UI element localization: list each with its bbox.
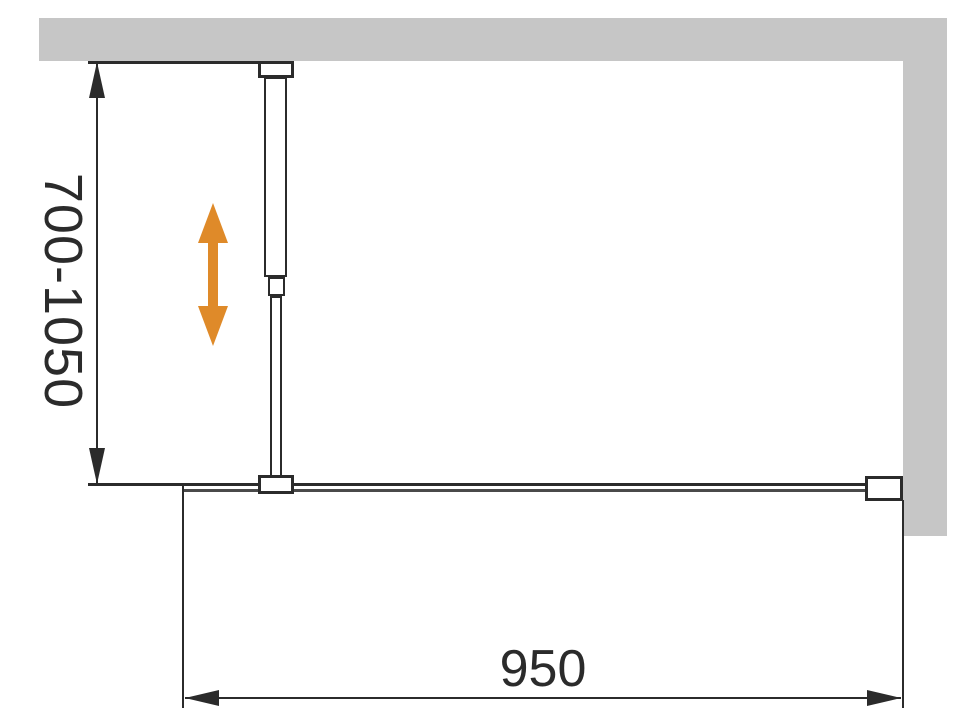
extension-line-right — [902, 500, 904, 708]
support-bar-wall-bracket — [258, 61, 294, 78]
wall-face-reference-line — [88, 61, 260, 64]
arrow-head-down — [198, 306, 228, 346]
wall-top — [39, 18, 947, 61]
support-bar-glass-clamp — [258, 475, 294, 494]
support-bar-lower-tube — [270, 296, 282, 477]
wall-right — [903, 18, 947, 536]
diagram-canvas: 700-1050 950 — [0, 0, 970, 726]
arrow-shaft — [208, 242, 218, 307]
glass-wall-profile — [865, 476, 903, 501]
glass-panel-top-edge — [88, 483, 865, 486]
support-bar-upper-tube — [264, 77, 287, 277]
vertical-dimension-line — [96, 63, 98, 484]
dimension-arrow-right-icon — [867, 690, 901, 706]
dimension-arrow-up-icon — [89, 62, 105, 98]
bar-length-dimension-label: 700-1050 — [36, 173, 90, 409]
dimension-arrow-left-icon — [185, 690, 219, 706]
arrow-head-up — [198, 203, 228, 243]
panel-width-dimension-label: 950 — [500, 643, 587, 695]
support-bar-collar — [268, 277, 285, 296]
dimension-arrow-down-icon — [89, 448, 105, 484]
extension-line-left — [182, 486, 184, 708]
double-vertical-arrow-icon — [198, 203, 228, 346]
